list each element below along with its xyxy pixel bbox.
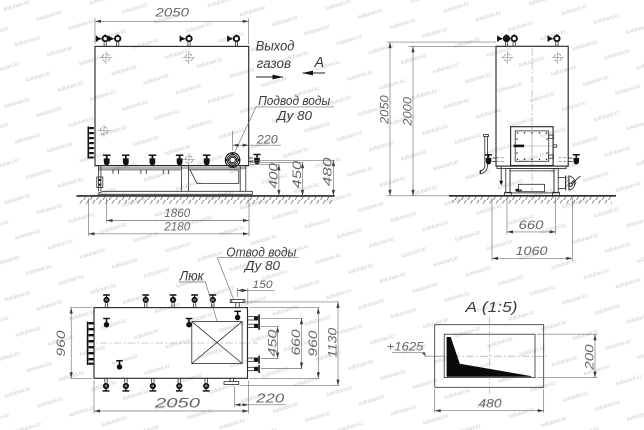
svg-text:Ду 80: Ду 80 [243, 258, 281, 273]
svg-text:Люк: Люк [179, 268, 205, 283]
svg-text:2180: 2180 [163, 222, 191, 234]
svg-text:1860: 1860 [164, 208, 191, 220]
svg-text:газов: газов [257, 56, 292, 71]
svg-text:960: 960 [56, 330, 68, 357]
svg-text:400: 400 [269, 162, 281, 188]
svg-text:2050: 2050 [154, 8, 190, 20]
svg-text:+1625: +1625 [387, 340, 424, 354]
svg-text:480: 480 [479, 397, 502, 411]
svg-text:220: 220 [256, 134, 279, 146]
svg-text:220: 220 [255, 391, 285, 406]
svg-text:150: 150 [253, 279, 274, 291]
svg-text:480: 480 [323, 157, 335, 187]
svg-text:А (1:5): А (1:5) [464, 299, 517, 316]
svg-text:Выход: Выход [256, 39, 295, 54]
svg-text:А: А [314, 55, 325, 71]
svg-text:450: 450 [292, 160, 304, 188]
svg-text:960: 960 [308, 330, 320, 357]
svg-text:450: 450 [267, 329, 279, 357]
svg-text:Подвод воды: Подвод воды [258, 93, 330, 108]
svg-text:1060: 1060 [516, 244, 548, 258]
svg-text:2050: 2050 [380, 95, 392, 125]
svg-text:2000: 2000 [402, 96, 414, 126]
svg-text:1130: 1130 [328, 327, 340, 358]
svg-text:200: 200 [585, 344, 597, 371]
svg-text:660: 660 [291, 329, 303, 356]
svg-text:Ду 80: Ду 80 [275, 108, 313, 123]
svg-text:660: 660 [519, 220, 545, 232]
svg-text:2050: 2050 [154, 395, 201, 410]
